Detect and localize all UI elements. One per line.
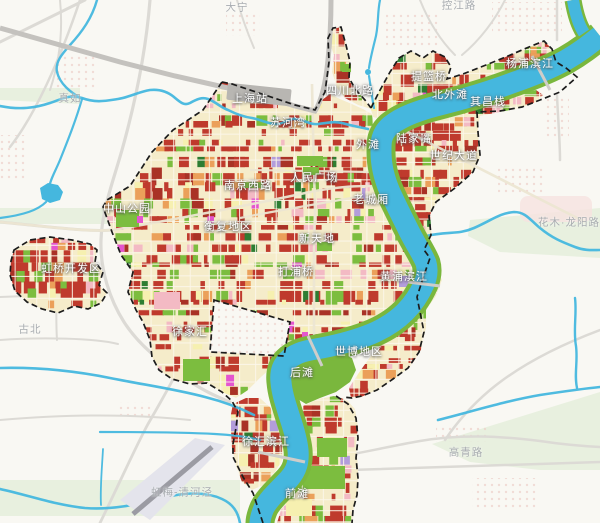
map-viewport[interactable]: 上海站苏河湾四川北路提篮桥杨浦滨江北外滩其昌栈外滩陆家嘴世纪大道人民广场南京西路…	[0, 0, 600, 523]
map-canvas[interactable]	[0, 0, 600, 523]
